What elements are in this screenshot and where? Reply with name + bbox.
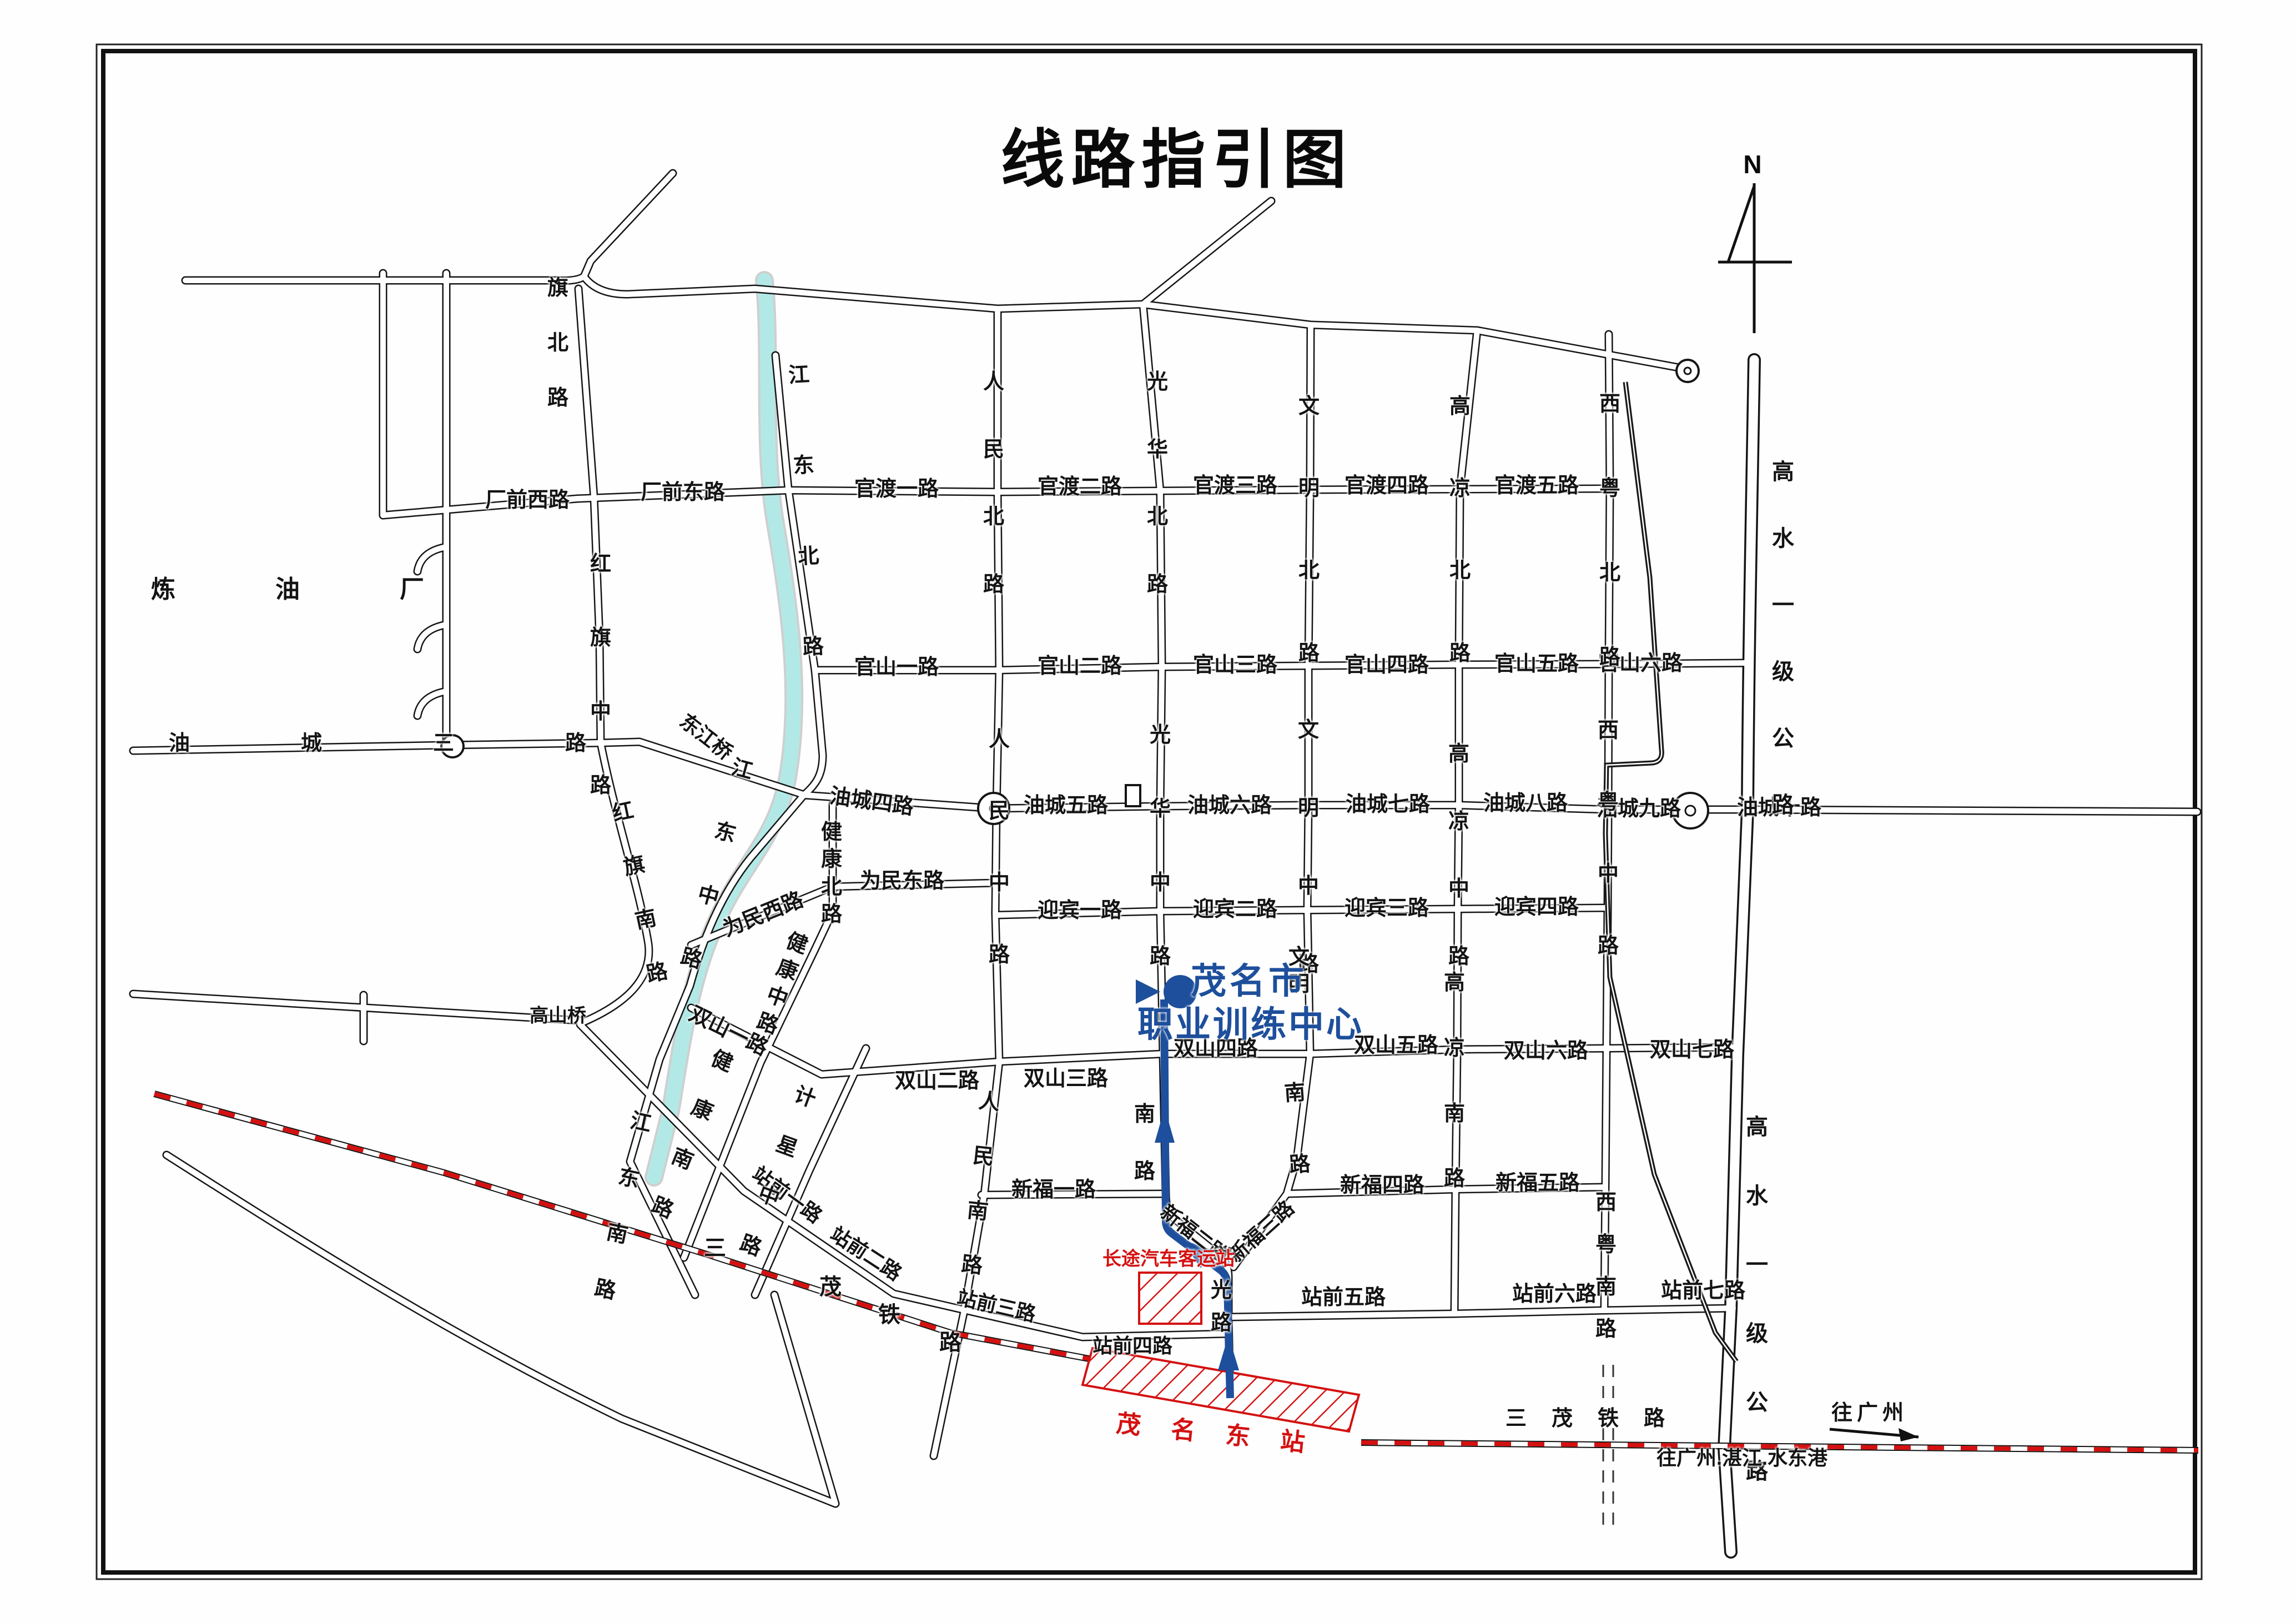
street-label-shuangshan-3: 双山三路 — [1024, 1068, 1108, 1091]
street-label-xinfu-4: 新福四路 — [1340, 1174, 1424, 1198]
street-label-guandu-3: 官渡三路 — [1193, 475, 1277, 498]
street-label-youcheng-6: 油城六路 — [1187, 795, 1272, 818]
north-arrow-icon — [1718, 183, 1792, 333]
railway-label-char-3: 铁 — [878, 1303, 900, 1327]
north-label: N — [1743, 149, 1761, 179]
railway-label-sanmao: 三茂铁路 — [1506, 1408, 1690, 1431]
street-label-shuangshan-5: 双山五路 — [1354, 1034, 1438, 1058]
map-canvas — [0, 0, 2296, 1623]
street-label-youcheng-3: 油城三路 — [169, 732, 697, 756]
railway-label-to-ports: 往广州.湛江.水东港 — [1656, 1447, 1827, 1469]
street-label-youcheng-5: 油城五路 — [1024, 795, 1108, 818]
street-label-guanghua-zhong: 光 华 中 路 — [1150, 699, 1171, 994]
street-label-yingbin-2: 迎宾二路 — [1193, 898, 1277, 922]
street-label-zhanqian-4: 站前四路 — [1092, 1335, 1172, 1357]
street-label-zhanqian-5: 站前五路 — [1301, 1287, 1386, 1310]
street-label-guanshan-3: 官山三路 — [1193, 654, 1277, 677]
street-label-qi-bei: 旗 北 路 — [547, 261, 568, 425]
gate-icon — [1126, 785, 1140, 806]
street-label-hongqi-zhong: 红 旗 中 路 — [590, 527, 611, 823]
street-label-guanshan-2: 官山二路 — [1038, 655, 1122, 679]
street-label-guandu-4: 官渡四路 — [1345, 475, 1429, 498]
railway-label-char-1: 三 — [704, 1236, 726, 1260]
street-label-xinfu-5: 新福五路 — [1496, 1172, 1580, 1195]
street-label-guanshan-4: 官山四路 — [1345, 654, 1429, 677]
street-label-xinfu-1: 新福一路 — [1011, 1179, 1096, 1202]
roundabout-icons — [441, 360, 1708, 828]
street-label-yingbin-4: 迎宾四路 — [1494, 896, 1579, 919]
landmark-label-refinery: 炼油厂 — [151, 576, 524, 603]
street-label-zhanqian-7: 站前七路 — [1661, 1280, 1745, 1303]
street-label-guandu-1: 官渡一路 — [854, 478, 939, 501]
street-label-xiyue-zhong: 西 粤 中 路 — [1598, 695, 1619, 982]
road-label-gaoshui-upper: 高 水 一 级 公 路 — [1772, 439, 1794, 838]
street-label-guanshan-5: 官山五路 — [1494, 653, 1579, 676]
road-label-gaoshui-lower: 高 水 一 级 公 路 — [1746, 1093, 1768, 1506]
railway-label-char-2: 茂 — [819, 1275, 842, 1299]
street-label-shuangshan-2: 双山二路 — [895, 1070, 979, 1093]
street-label-yingbin-3: 迎宾三路 — [1345, 897, 1429, 921]
street-label-renmin-zhong: 人 民 中 路 — [989, 704, 1010, 991]
railway-label-char-4: 路 — [939, 1330, 961, 1355]
street-label-jiankang-bei: 健 康 北 路 — [821, 819, 842, 929]
street-label-shuangshan-7: 双山七路 — [1650, 1039, 1734, 1062]
street-label-guanshan-1: 官山一路 — [854, 656, 939, 680]
route-arrow-icon — [1155, 1108, 1175, 1143]
street-label-shuangshan-6: 双山六路 — [1504, 1040, 1588, 1063]
street-label-guanghua-bei: 光 华 北 路 — [1147, 349, 1168, 619]
bridge-label-gaoshan: 高山桥 — [530, 1006, 586, 1026]
street-label-youcheng-8: 油城八路 — [1483, 792, 1568, 816]
station-label-bus: 长途汽车客运站 — [1102, 1249, 1235, 1269]
street-label-zhanqian-6: 站前六路 — [1512, 1283, 1597, 1307]
street-label-guanghua-nan: 南 路 — [1134, 1086, 1155, 1200]
railway-label-to-guangzhou: 往广州 — [1831, 1402, 1908, 1425]
street-label-changqian-xi: 厂前西路 — [485, 489, 570, 512]
street-label-weimin-dong: 为民东路 — [860, 870, 944, 893]
street-label-gaoliang-nan: 高 凉 南 路 — [1444, 951, 1465, 1212]
street-label-yingbin-1: 迎宾一路 — [1038, 900, 1122, 923]
bus-station-box — [1139, 1273, 1201, 1324]
to-guangzhou-arrow-icon — [1830, 1428, 1919, 1441]
rail-spur — [1605, 382, 1736, 1361]
street-label-youcheng-7: 油城七路 — [1346, 793, 1430, 817]
route-arrow-icon — [1218, 1335, 1239, 1370]
destination-name-line2: 职业训练中心 — [1137, 996, 1364, 1047]
street-label-gaoliang-bei: 高 凉 北 路 — [1449, 365, 1471, 695]
route-guide-map: 线路指引图 N 茂名市 职业训练中心 厂前西路厂前东路官渡一路官渡二路官渡三路官… — [0, 0, 2296, 1623]
street-label-xiyue-bei: 西 粤 北 路 — [1599, 362, 1620, 700]
street-label-renmin-bei: 人 民 北 路 — [983, 349, 1004, 619]
page-title: 线路指引图 — [1000, 108, 1353, 200]
street-label-guandu-5: 官渡五路 — [1494, 475, 1579, 498]
street-label-changqian-dong: 厂前东路 — [641, 481, 725, 505]
street-label-guandu-2: 官渡二路 — [1038, 476, 1122, 499]
street-label-wenming-bei: 文 明 北 路 — [1298, 365, 1320, 695]
street-label-xiyue-nan: 西 粤 南 路 — [1595, 1182, 1617, 1350]
